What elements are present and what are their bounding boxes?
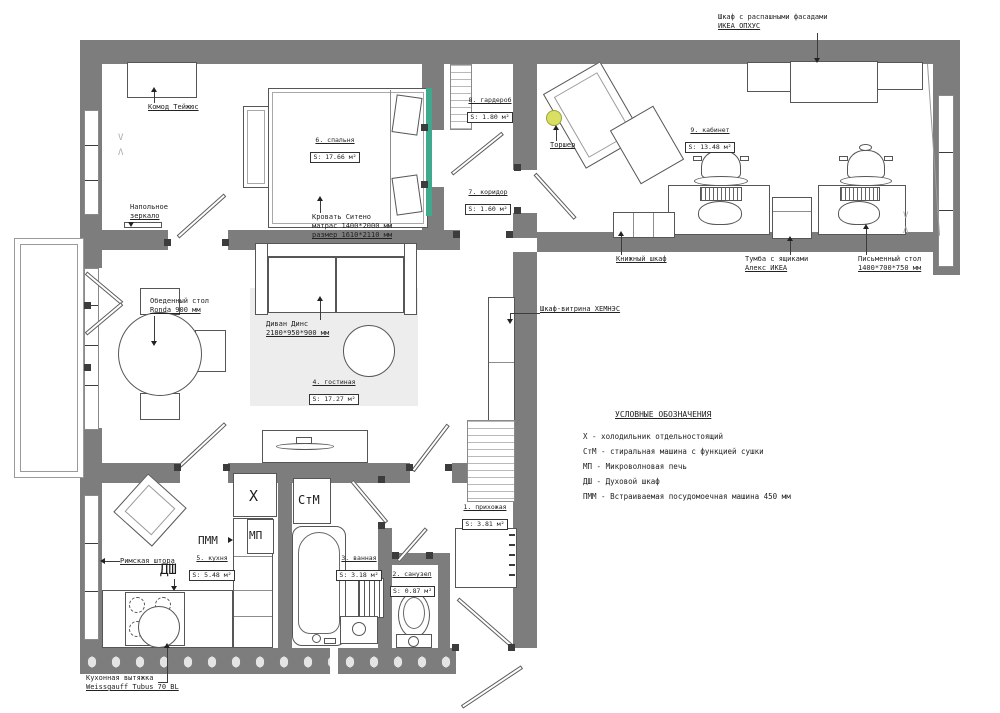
towel-radiator bbox=[358, 578, 384, 618]
bathtub-inner bbox=[298, 532, 340, 634]
door-jamb bbox=[392, 552, 399, 559]
pillow bbox=[391, 174, 422, 215]
dining-table bbox=[118, 312, 202, 396]
desk-keyboard bbox=[700, 187, 742, 201]
sofa-back bbox=[255, 243, 417, 257]
toilet-button bbox=[408, 636, 419, 647]
leader bbox=[167, 648, 168, 683]
door-jamb bbox=[445, 464, 452, 471]
pot-on-stove bbox=[138, 606, 180, 648]
door-jamb bbox=[421, 181, 428, 188]
burner bbox=[129, 597, 145, 613]
leader-arrow bbox=[151, 87, 157, 92]
leader-arrow bbox=[787, 236, 793, 241]
leader-arrow bbox=[128, 222, 134, 227]
microwave-mark: МП bbox=[249, 529, 262, 542]
room-label-kitchen: 5. кухняS: 5.48 м² bbox=[186, 554, 238, 581]
leader-arrow bbox=[863, 224, 869, 229]
coffee-table bbox=[343, 325, 395, 377]
bath-sink-bowl bbox=[352, 622, 366, 636]
dishwasher-mark: ПММ bbox=[198, 534, 218, 547]
label-display-cabinet: Шкаф-витрина ХЕМНЭС bbox=[540, 305, 620, 314]
label-torcher: Торшер bbox=[550, 141, 575, 150]
leader-arrow bbox=[164, 643, 170, 648]
door-jamb bbox=[514, 164, 521, 171]
leader bbox=[154, 92, 155, 103]
kitchen-column-divider bbox=[234, 616, 272, 617]
window-post bbox=[84, 364, 91, 371]
leader bbox=[790, 241, 791, 255]
label-bed: Кровать Ситено матрас 1400*2000 мм разме… bbox=[312, 213, 392, 240]
leader bbox=[621, 236, 622, 255]
desk-lamp-handle bbox=[693, 156, 702, 161]
oven-arrow bbox=[171, 586, 177, 591]
wall-office-bottom bbox=[537, 232, 960, 252]
label-roman-blind: Римская штора bbox=[120, 557, 175, 566]
hook bbox=[509, 544, 515, 546]
leader-arrow bbox=[100, 558, 105, 564]
kitchen-window bbox=[84, 495, 99, 640]
leader bbox=[866, 229, 867, 255]
hall-door-leaf bbox=[411, 424, 449, 473]
wardrobe-door-leaf bbox=[451, 132, 504, 176]
leader bbox=[320, 301, 321, 320]
label-drawer-unit: Тумба с ящикамиАлекс ИКЕА bbox=[745, 255, 808, 273]
door-jamb bbox=[378, 476, 385, 483]
curtain-mark: Λ bbox=[118, 148, 123, 158]
room-label-wc: 2. санузелS: 0.87 м² bbox=[390, 570, 434, 597]
top-cabinet-left bbox=[747, 62, 791, 92]
leader bbox=[320, 201, 321, 213]
door-jamb bbox=[426, 552, 433, 559]
sofa-cushion bbox=[336, 257, 404, 313]
leader bbox=[105, 561, 120, 562]
leader bbox=[556, 130, 557, 141]
curtain-mark: V bbox=[903, 211, 908, 221]
legend-item-oven: ДШ - Духовой шкаф bbox=[583, 477, 660, 486]
bedroom-window bbox=[84, 110, 99, 215]
sofa-cushion bbox=[268, 257, 336, 313]
room-label-living: 4. гостинаяS: 17.27 м² bbox=[298, 378, 370, 405]
leader-arrow bbox=[507, 319, 513, 324]
wall-bottom-left bbox=[80, 648, 330, 674]
door-jamb bbox=[421, 124, 428, 131]
leader-arrow bbox=[151, 341, 157, 346]
office-door-leaf bbox=[534, 173, 577, 220]
floor-lamp-icon bbox=[546, 110, 562, 126]
bath-tap bbox=[324, 638, 336, 644]
hook bbox=[509, 574, 515, 576]
label-sofa: Диван Динс2180*950*900 мм bbox=[266, 320, 329, 338]
desk-chair bbox=[838, 201, 880, 225]
legend-item-microwave: МП - Микроволновая печь bbox=[583, 462, 687, 471]
door-jamb bbox=[452, 644, 459, 651]
curtain-mark: V bbox=[118, 133, 123, 143]
hook bbox=[509, 554, 515, 556]
door-jamb bbox=[378, 522, 385, 529]
room-label-wardrobe: 8. гардеробS: 1.80 м² bbox=[462, 96, 518, 123]
legend-title: УСЛОВНЫЕ ОБОЗНАЧЕНИЯ bbox=[615, 410, 711, 419]
label-desk: Письменный стол1400*700*750 мм bbox=[858, 255, 921, 273]
balcony-window-bar bbox=[85, 385, 98, 386]
wall-mid-upper-b bbox=[513, 213, 537, 238]
kitchen-window-bar bbox=[85, 543, 98, 544]
desk-lamp-handle bbox=[884, 156, 893, 161]
kitchen-door-leaf bbox=[179, 422, 227, 467]
kitchen-column-divider bbox=[234, 590, 272, 591]
desk-lamp-handle bbox=[839, 156, 848, 161]
wall-mid-lower bbox=[513, 252, 537, 648]
bed-headboard-accent bbox=[426, 88, 432, 216]
wall-bedroom-bottom-a bbox=[102, 230, 168, 250]
door-jamb bbox=[508, 644, 515, 651]
bedroom-door-leaf bbox=[177, 194, 227, 239]
leader bbox=[817, 33, 818, 59]
ladder bbox=[467, 420, 515, 502]
leader bbox=[154, 316, 155, 342]
balcony-door-window bbox=[84, 268, 99, 430]
hook bbox=[509, 564, 515, 566]
label-bookcase: Книжный шкаф bbox=[616, 255, 667, 264]
office-window bbox=[938, 95, 954, 267]
leader-arrow bbox=[317, 196, 323, 201]
door-jamb bbox=[174, 464, 181, 471]
desk-lamp-handle bbox=[740, 156, 749, 161]
label-kitchen-hood: Кухонная вытяжкаWeissgauff Tubus 70 BL bbox=[86, 674, 179, 692]
washer-mark: СтМ bbox=[298, 493, 320, 507]
door-jamb bbox=[223, 464, 230, 471]
leader bbox=[510, 313, 540, 314]
desk-lamp-body bbox=[701, 150, 741, 178]
desk-chair bbox=[698, 201, 742, 225]
dishwasher-arrow bbox=[228, 537, 233, 543]
label-ikea-ophus: Шкаф с распашными фасадамиИКЕА ОПХУС bbox=[718, 13, 828, 31]
wall-bottom-mid bbox=[338, 648, 456, 674]
office-window-bar bbox=[939, 152, 953, 153]
desk-lamp-base bbox=[840, 176, 892, 186]
door-jamb bbox=[164, 239, 171, 246]
bed-blanket-line bbox=[390, 90, 391, 226]
balcony-window-bar bbox=[85, 345, 98, 346]
wall-wc-right bbox=[438, 553, 450, 648]
curtain-mark: Λ bbox=[903, 226, 908, 236]
balcony-inner-outline bbox=[20, 244, 78, 472]
bookcase-divider bbox=[653, 213, 654, 237]
dining-chair bbox=[140, 393, 180, 420]
bookcase-divider bbox=[633, 213, 634, 237]
fridge-mark: Х bbox=[249, 487, 258, 505]
room-label-office: 9. кабинетS: 13.48 м² bbox=[670, 126, 750, 153]
leader-arrow bbox=[814, 58, 820, 63]
room-label-hall: 1. прихожаяS: 3.81 м² bbox=[455, 503, 515, 530]
label-dresser: Комод Тейжюс bbox=[148, 103, 199, 112]
dresser bbox=[127, 62, 197, 98]
drawer-unit bbox=[772, 197, 812, 239]
top-cabinet-right bbox=[877, 62, 923, 90]
wall-kitchen-bath bbox=[278, 483, 292, 648]
toilet-bowl-inner bbox=[403, 597, 425, 629]
label-floor-mirror: Напольноезеркало bbox=[130, 203, 168, 221]
tv bbox=[276, 443, 334, 450]
tv-mount bbox=[296, 437, 312, 444]
bedroom-bench-inner bbox=[247, 110, 265, 184]
room-label-bedroom: 6. спальняS: 17.66 м² bbox=[296, 136, 374, 163]
leader-arrow bbox=[317, 296, 323, 301]
door-jamb bbox=[406, 464, 413, 471]
room-label-bath: 3. ваннаяS: 3.18 м² bbox=[336, 554, 382, 581]
desk-lamp-body bbox=[847, 150, 885, 178]
leader-arrow bbox=[618, 231, 624, 236]
pillow bbox=[391, 94, 422, 135]
desk-lamp-base bbox=[694, 176, 748, 186]
entrance-door-leaf-out bbox=[461, 665, 523, 708]
office-window-bar bbox=[939, 210, 953, 211]
bath-door-leaf bbox=[350, 480, 388, 524]
door-jamb bbox=[453, 231, 460, 238]
door-jamb bbox=[506, 231, 513, 238]
desk-keyboard bbox=[840, 187, 880, 201]
room-label-corridor: 7. коридорS: 1.60 м² bbox=[460, 188, 516, 215]
kitchen-window-bar bbox=[85, 591, 98, 592]
display-cabinet-divider bbox=[489, 362, 514, 363]
bath-drain bbox=[312, 634, 321, 643]
entrance-door-leaf-in bbox=[457, 597, 515, 648]
shoe-rack bbox=[455, 528, 517, 588]
hook bbox=[509, 534, 515, 536]
bedroom-window-bar bbox=[85, 180, 98, 181]
kitchen-column-divider bbox=[234, 556, 272, 557]
floor-plan: V Λ V Λ bbox=[0, 0, 1000, 713]
door-jamb bbox=[222, 239, 229, 246]
legend-item-dishwasher: ПММ - Встраиваемая посудомоечная машина … bbox=[583, 492, 791, 501]
drawer-unit-line bbox=[773, 211, 811, 212]
sofa-armrest bbox=[404, 243, 417, 315]
label-dining-table: Обеденный столRonda 900 мм bbox=[150, 297, 209, 315]
leader-arrow bbox=[553, 125, 559, 130]
legend-item-washer: СтМ - стиральная машина с функцией сушки bbox=[583, 447, 764, 456]
balcony-window-bar bbox=[85, 305, 98, 306]
top-cabinet-center bbox=[790, 61, 878, 103]
bedroom-window-bar bbox=[85, 145, 98, 146]
sofa-armrest bbox=[255, 243, 268, 315]
legend-item-fridge: Х - холодильник отдельностоящий bbox=[583, 432, 723, 441]
